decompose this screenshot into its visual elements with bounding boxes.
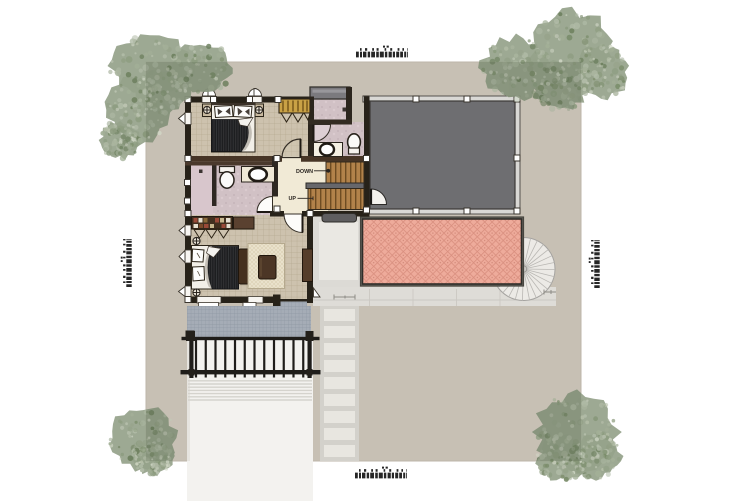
svg-text:DOWN: DOWN xyxy=(296,169,313,175)
svg-text:UP: UP xyxy=(289,196,297,202)
